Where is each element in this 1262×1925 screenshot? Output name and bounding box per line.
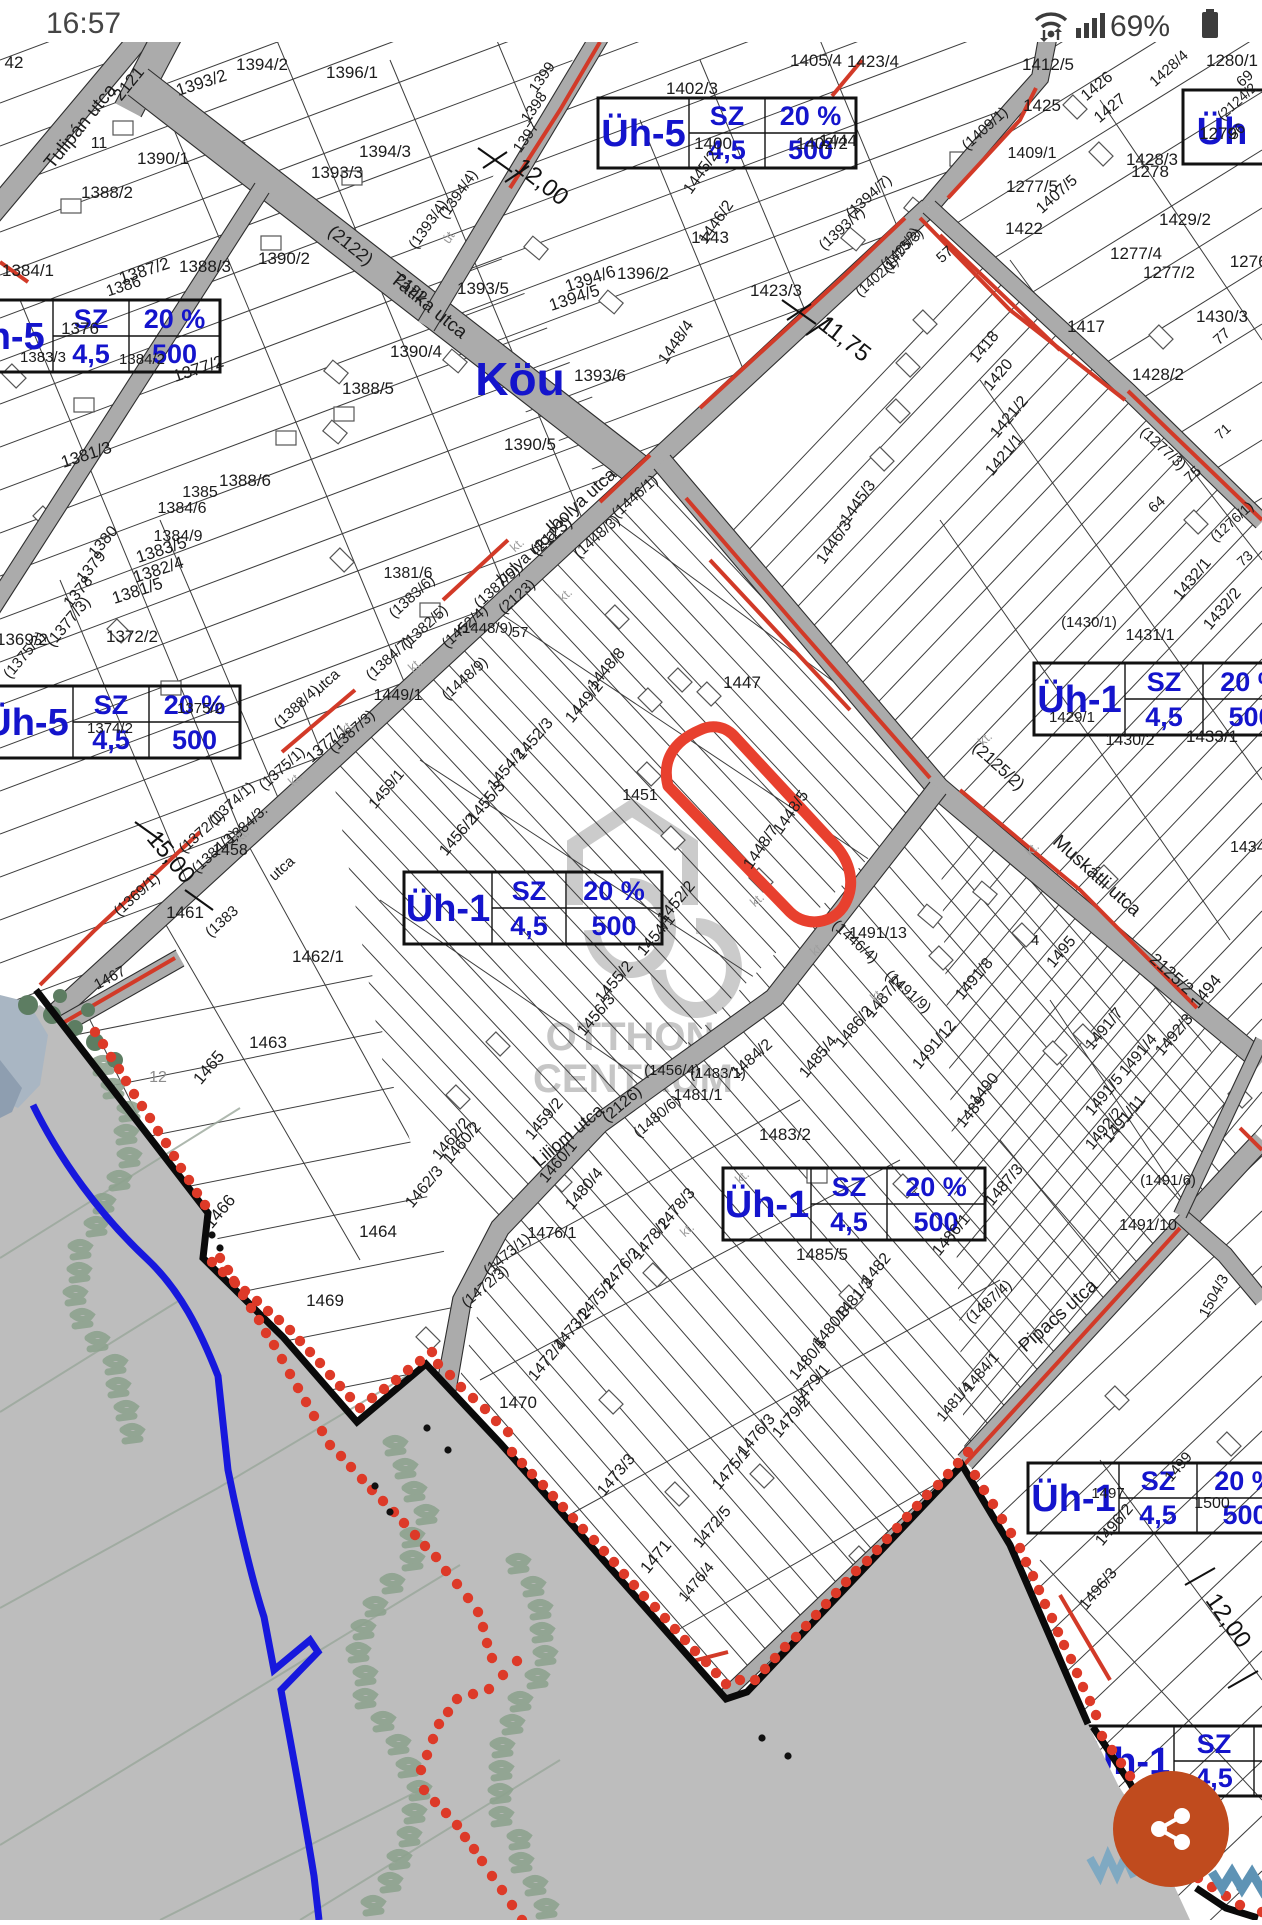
svg-text:SZ: SZ xyxy=(1197,1729,1232,1759)
svg-text:1388/6: 1388/6 xyxy=(219,471,271,490)
svg-text:20 %: 20 % xyxy=(780,101,842,131)
svg-text:1428/2: 1428/2 xyxy=(1132,365,1184,384)
svg-text:1393/3: 1393/3 xyxy=(311,163,363,182)
svg-text:1423/3: 1423/3 xyxy=(750,281,802,300)
svg-text:1423/4: 1423/4 xyxy=(847,52,899,71)
svg-text:1369/2: 1369/2 xyxy=(0,630,48,649)
svg-text:20 %: 20 % xyxy=(144,304,206,334)
svg-text:1461: 1461 xyxy=(166,903,204,922)
svg-text:500: 500 xyxy=(591,911,636,941)
svg-text:20 %: 20 % xyxy=(1220,667,1262,697)
svg-text:4,5: 4,5 xyxy=(1145,702,1183,732)
svg-text:1449/1: 1449/1 xyxy=(374,687,423,704)
svg-text:1390/4: 1390/4 xyxy=(390,342,442,361)
svg-text:1396/1: 1396/1 xyxy=(326,63,378,82)
svg-text:42: 42 xyxy=(5,53,24,72)
svg-text:1464: 1464 xyxy=(359,1222,397,1241)
svg-text:1405/4: 1405/4 xyxy=(790,51,842,70)
svg-text:1383/3: 1383/3 xyxy=(20,349,66,366)
svg-text:1485/5: 1485/5 xyxy=(796,1245,848,1264)
svg-text:1388/3: 1388/3 xyxy=(179,257,231,276)
svg-text:20 %: 20 % xyxy=(1214,1466,1262,1496)
svg-text:1463: 1463 xyxy=(249,1033,287,1052)
svg-text:4,5: 4,5 xyxy=(510,911,548,941)
svg-text:SZ: SZ xyxy=(832,1172,867,1202)
svg-text:1462/1: 1462/1 xyxy=(292,947,344,966)
svg-text:12: 12 xyxy=(149,1069,167,1086)
svg-text:1276/: 1276/ xyxy=(1230,252,1262,271)
svg-text:1402/3: 1402/3 xyxy=(666,79,718,98)
svg-text:1388/5: 1388/5 xyxy=(342,379,394,398)
svg-text:Köu: Köu xyxy=(475,353,564,405)
svg-text:1476/1: 1476/1 xyxy=(528,1225,577,1242)
svg-text:(1491/6): (1491/6) xyxy=(1140,1172,1196,1189)
svg-text:1393/6: 1393/6 xyxy=(574,366,626,385)
svg-text:1444: 1444 xyxy=(819,131,857,150)
svg-text:1396/2: 1396/2 xyxy=(617,264,669,283)
svg-text:1384/2: 1384/2 xyxy=(119,351,165,368)
svg-text:20 %: 20 % xyxy=(583,876,645,906)
svg-text:4,5: 4,5 xyxy=(1139,1500,1177,1530)
svg-text:1458: 1458 xyxy=(212,842,248,859)
svg-text:1497: 1497 xyxy=(1091,1485,1124,1502)
svg-text:1390/5: 1390/5 xyxy=(504,435,556,454)
svg-text:1417: 1417 xyxy=(1067,317,1105,336)
svg-text:1277/4: 1277/4 xyxy=(1110,244,1162,263)
svg-text:1385: 1385 xyxy=(182,484,218,501)
svg-text:1429/1: 1429/1 xyxy=(1049,709,1095,726)
svg-text:1394/2: 1394/2 xyxy=(236,55,288,74)
svg-text:(1430/1): (1430/1) xyxy=(1061,614,1117,631)
svg-text:Üh-1: Üh-1 xyxy=(406,887,490,930)
svg-text:1393/5: 1393/5 xyxy=(457,279,509,298)
svg-text:1443: 1443 xyxy=(691,228,729,247)
svg-text:1388/2: 1388/2 xyxy=(81,183,133,202)
svg-text:(1456/4): (1456/4) xyxy=(644,1062,700,1079)
svg-text:1500: 1500 xyxy=(1194,1495,1230,1512)
svg-text:1430/2: 1430/2 xyxy=(1106,732,1155,749)
svg-text:1375/2: 1375/2 xyxy=(177,700,223,717)
svg-text:1481/1: 1481/1 xyxy=(674,1087,723,1104)
svg-text:1390/2: 1390/2 xyxy=(258,249,310,268)
svg-text:Üh-5: Üh-5 xyxy=(0,701,69,744)
svg-text:1434/: 1434/ xyxy=(1230,839,1262,856)
svg-text:1429/2: 1429/2 xyxy=(1159,210,1211,229)
svg-text:SZ: SZ xyxy=(512,876,547,906)
svg-text:SZ: SZ xyxy=(1147,667,1182,697)
svg-text:1384/9: 1384/9 xyxy=(154,528,203,545)
svg-text:1431/1: 1431/1 xyxy=(1126,627,1175,644)
svg-text:1483/2: 1483/2 xyxy=(759,1125,811,1144)
svg-text:SZ: SZ xyxy=(710,101,745,131)
svg-text:1384/1: 1384/1 xyxy=(2,261,54,280)
svg-text:Üh-1: Üh-1 xyxy=(725,1183,809,1226)
svg-text:1412/5: 1412/5 xyxy=(1022,55,1074,74)
svg-text:1447: 1447 xyxy=(723,673,761,692)
svg-text:Üh-5: Üh-5 xyxy=(601,112,685,155)
svg-text:1384/6: 1384/6 xyxy=(158,500,207,517)
svg-text:1469: 1469 xyxy=(306,1291,344,1310)
svg-text:1277/2: 1277/2 xyxy=(1143,263,1195,282)
svg-text:4,5: 4,5 xyxy=(830,1207,868,1237)
svg-text:1280/1: 1280/1 xyxy=(1206,51,1258,70)
svg-text:1376: 1376 xyxy=(61,319,99,338)
svg-text:57: 57 xyxy=(512,624,529,641)
svg-text:(1448/9): (1448/9) xyxy=(457,620,513,637)
svg-text:1374/2: 1374/2 xyxy=(87,720,133,737)
svg-text:1430/3: 1430/3 xyxy=(1196,307,1248,326)
svg-text:1433/1: 1433/1 xyxy=(1186,727,1238,746)
svg-text:1400: 1400 xyxy=(694,134,732,153)
svg-text:1470: 1470 xyxy=(499,1393,537,1412)
svg-text:16:57: 16:57 xyxy=(46,7,121,40)
svg-text:4: 4 xyxy=(1031,932,1039,949)
svg-text:500: 500 xyxy=(172,725,217,755)
svg-text:1390/1: 1390/1 xyxy=(137,149,189,168)
svg-text:1394/3: 1394/3 xyxy=(359,142,411,161)
svg-text:11: 11 xyxy=(91,135,108,152)
svg-text:1372/2: 1372/2 xyxy=(106,627,158,646)
svg-text:69%: 69% xyxy=(1110,10,1170,43)
svg-text:1491/10: 1491/10 xyxy=(1119,1217,1177,1234)
svg-text:1409/1: 1409/1 xyxy=(1008,145,1057,162)
svg-text:20 %: 20 % xyxy=(905,1172,967,1202)
svg-text:SZ: SZ xyxy=(94,690,129,720)
svg-text:1451: 1451 xyxy=(622,787,658,804)
svg-text:1422: 1422 xyxy=(1005,219,1043,238)
svg-text:1428/3: 1428/3 xyxy=(1126,150,1178,169)
svg-text:4,5: 4,5 xyxy=(72,339,110,369)
svg-text:1425: 1425 xyxy=(1023,96,1061,115)
